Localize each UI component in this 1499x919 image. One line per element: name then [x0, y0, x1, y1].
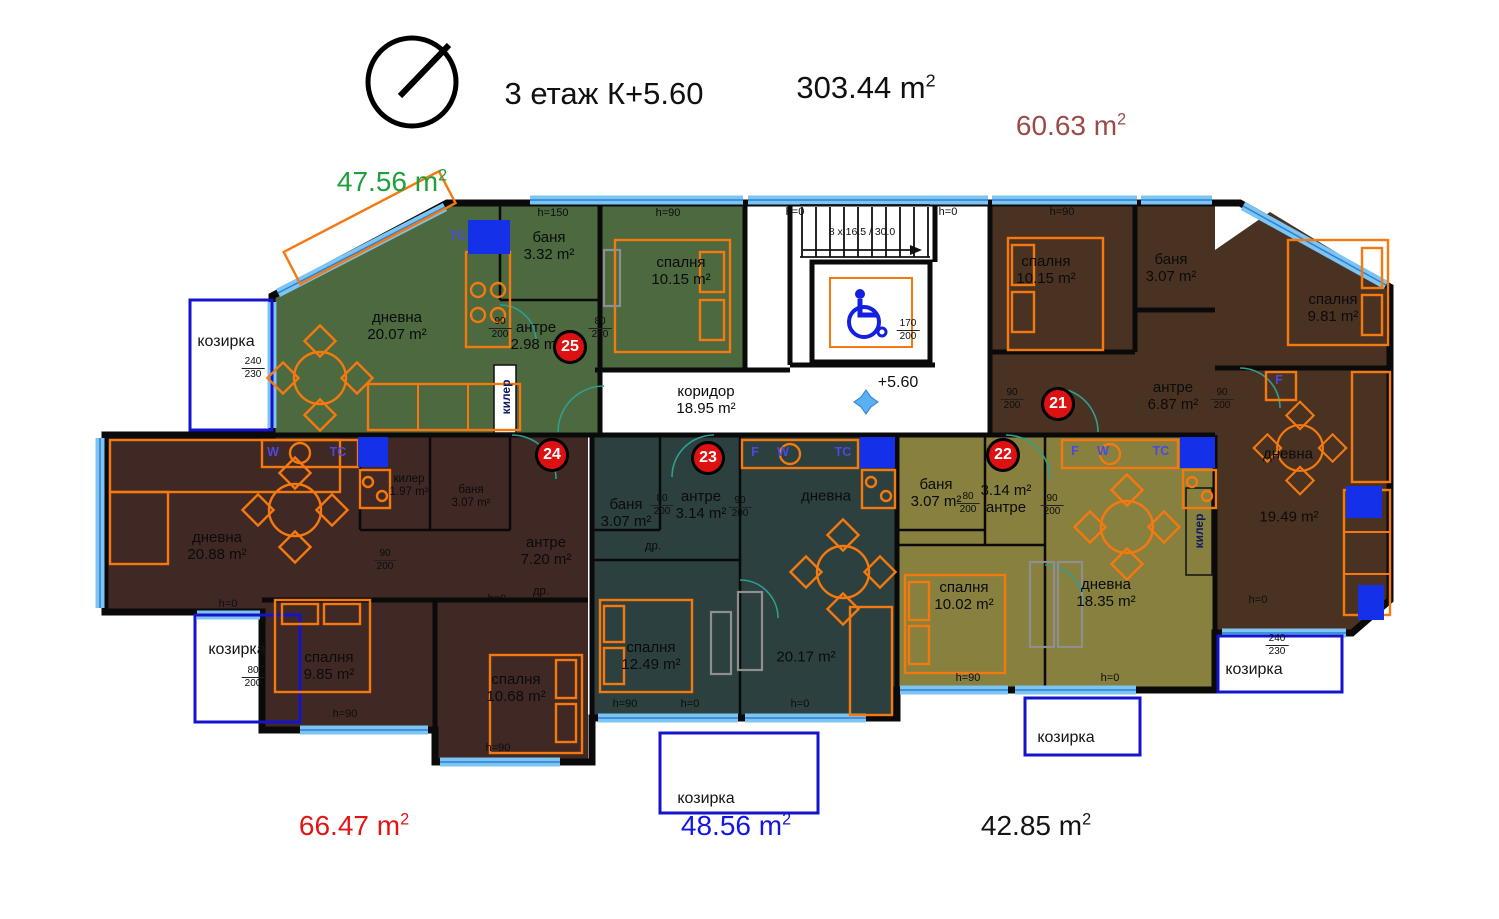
window-height-label: h=150	[538, 207, 569, 219]
opening-size-label: 170200	[897, 318, 920, 342]
window-height-label: h=0	[219, 598, 238, 610]
room-label-dnevna-24: дневна20.88 m²	[187, 530, 246, 564]
room-label-spalnya-22: спалня10.02 m²	[934, 580, 993, 614]
door-size-label: 80200	[651, 493, 674, 517]
room-label-dnevna-25: дневна20.07 m²	[367, 310, 426, 344]
level-mark-label: +5.60	[878, 374, 918, 392]
appliance-label: F	[1275, 373, 1283, 387]
total-area-label: 303.44 m2	[796, 70, 935, 106]
window-height-label: h=90	[486, 742, 511, 754]
room-label-banya-22: баня3.07 m²	[911, 477, 962, 511]
door-size-label: 90200	[1041, 493, 1064, 517]
window-height-label: h=90	[656, 207, 681, 219]
room-label-banya-25: баня3.32 m²	[524, 230, 575, 264]
room-label-spalnya2-24: спалня10.68 m²	[486, 672, 545, 706]
room-label-spalnya1-21: спалня10.15 m²	[1016, 254, 1075, 288]
room-label-spalnya-23: спалня12.49 m²	[621, 640, 680, 674]
window-height-label: h=0	[488, 593, 507, 605]
apartment-badge-24: 24	[535, 438, 569, 472]
room-label-dr-23: др.	[645, 541, 661, 554]
room-area-dnevna-23: 20.17 m²	[776, 650, 835, 667]
room-label-dnevna-23: дневна	[801, 489, 851, 506]
apartment-badge-25: 25	[553, 330, 587, 364]
room-label-dnevna-21: дневна	[1263, 447, 1313, 464]
north-arrow-icon	[368, 38, 456, 126]
area-summary-apt22: 42.85 m2	[981, 810, 1091, 842]
level-marker-icon	[854, 390, 878, 414]
canopy-label-bottom-right: козирка	[1037, 729, 1094, 747]
window-height-label: h=90	[333, 708, 358, 720]
stairs-label: 8 x 16.5 / 30.0	[829, 226, 896, 238]
canopy-label-right: козирка	[1225, 661, 1282, 679]
window-height-label: h=90	[613, 698, 638, 710]
appliance-label: F	[1071, 444, 1079, 458]
apartment-badge-23: 23	[691, 441, 725, 475]
door-size-label: 90200	[729, 495, 752, 519]
room-label-dr-24: др.	[533, 586, 549, 599]
room-area-dnevna-21: 19.49 m²	[1259, 510, 1318, 527]
door-size-label: 90200	[489, 316, 512, 340]
room-label-spalnya2-21: спалня9.81 m²	[1308, 292, 1359, 326]
appliance-label: W	[267, 445, 279, 459]
total-area-sup: 2	[926, 71, 936, 91]
room-label-antre-24: антре7.20 m²	[521, 535, 572, 569]
area-summary-apt21: 60.63 m2	[1016, 110, 1126, 142]
room-label-kiler-24: килер1.97 m²	[390, 473, 429, 499]
appliance-label: ТС	[1153, 444, 1170, 458]
area-summary-apt23: 48.56 m2	[681, 810, 791, 842]
room-label-kiler-22: килер	[1192, 514, 1206, 549]
room-label-dnevna-22: дневна18.35 m²	[1076, 577, 1135, 611]
opening-size-label: 240230	[1266, 633, 1289, 657]
appliance-label: W	[1097, 444, 1109, 458]
window-height-label: h=90	[1050, 206, 1075, 218]
window-height-label: h=0	[786, 206, 805, 218]
area-summary-apt24: 66.47 m2	[299, 810, 409, 842]
apartment-badge-21: 21	[1041, 387, 1075, 421]
corridor-label: коридор18.95 m²	[676, 384, 735, 418]
door-size-label: 90200	[1001, 387, 1024, 411]
apartment-badge-22: 22	[986, 438, 1020, 472]
room-label-spalnya-25: спалня10.15 m²	[651, 255, 710, 289]
room-label-spalnya1-24: спалня9.85 m²	[304, 650, 355, 684]
room-label-antre-22: 3.14 m²антре	[981, 483, 1032, 517]
appliance-label: ТС	[450, 229, 467, 243]
window-height-label: h=0	[939, 206, 958, 218]
room-label-banya-21: баня3.07 m²	[1146, 252, 1197, 286]
appliance-label: F	[751, 445, 759, 459]
room-label-antre-23: антре3.14 m²	[676, 489, 727, 523]
door-size-label: 90200	[1211, 387, 1234, 411]
door-size-label: 90200	[374, 548, 397, 572]
appliance-label: ТС	[330, 445, 347, 459]
total-area-value: 303.44 m	[796, 70, 925, 105]
floor-plan-page: 3 етаж К+5.60 303.44 m2 47.56 m2 60.63 m…	[0, 0, 1499, 919]
window-height-label: h=0	[1249, 594, 1268, 606]
window-height-label: h=0	[1101, 672, 1120, 684]
door-size-label: 80200	[957, 491, 980, 515]
room-label-banya-23: баня3.07 m²	[601, 497, 652, 531]
canopy-label-left: козирка	[208, 641, 265, 659]
window-height-label: h=0	[791, 698, 810, 710]
opening-size-label: 240230	[242, 356, 265, 380]
appliance-label: W	[777, 445, 789, 459]
canopy-label-bottom-center: козирка	[677, 790, 734, 808]
room-label-kiler-25: килер	[499, 380, 513, 415]
area-summary-apt25: 47.56 m2	[337, 166, 447, 198]
room-label-antre-21: антре6.87 m²	[1148, 380, 1199, 414]
appliance-label: ТС	[835, 445, 852, 459]
window-height-label: h=0	[681, 698, 700, 710]
door-size-label: 80200	[589, 316, 612, 340]
door-size-label: 80200	[242, 665, 265, 689]
room-label-banya-24: баня3.07 m²	[452, 484, 491, 510]
canopy-label-top-left: козирка	[197, 333, 254, 351]
window-height-label: h=90	[956, 672, 981, 684]
page-title: 3 етаж К+5.60	[504, 76, 703, 112]
